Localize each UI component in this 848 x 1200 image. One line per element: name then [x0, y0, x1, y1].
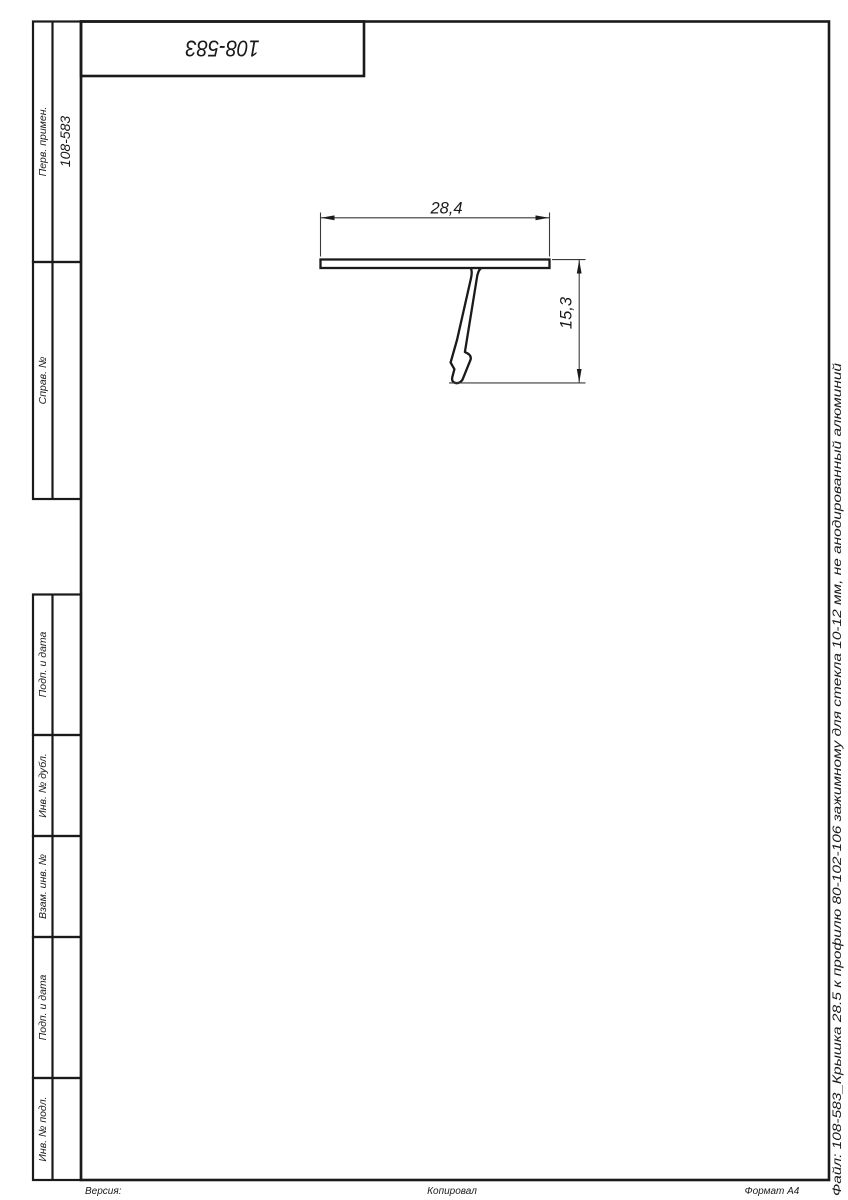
svg-text:Подп. и дата: Подп. и дата [37, 631, 49, 697]
svg-text:Версия:: Версия: [85, 1186, 122, 1197]
svg-text:Инв. № подл.: Инв. № подл. [37, 1096, 49, 1161]
svg-text:Формат А4: Формат А4 [745, 1186, 800, 1197]
svg-text:Инв. № дубл.: Инв. № дубл. [37, 753, 49, 818]
svg-text:Взам. инв. №: Взам. инв. № [37, 854, 49, 919]
svg-text:Справ. №: Справ. № [37, 357, 49, 405]
svg-text:Копировал: Копировал [427, 1186, 477, 1197]
svg-text:Перв. примен.: Перв. примен. [37, 107, 49, 177]
svg-text:108-583: 108-583 [185, 35, 259, 61]
svg-text:Подп. и дата: Подп. и дата [37, 974, 49, 1040]
svg-text:28,4: 28,4 [429, 200, 462, 218]
svg-text:Файл: 108-583_Крышка 28.5 к пр: Файл: 108-583_Крышка 28.5 к профилю 80-1… [832, 362, 844, 1196]
svg-text:15,3: 15,3 [558, 296, 576, 329]
svg-text:108-583: 108-583 [57, 116, 73, 168]
